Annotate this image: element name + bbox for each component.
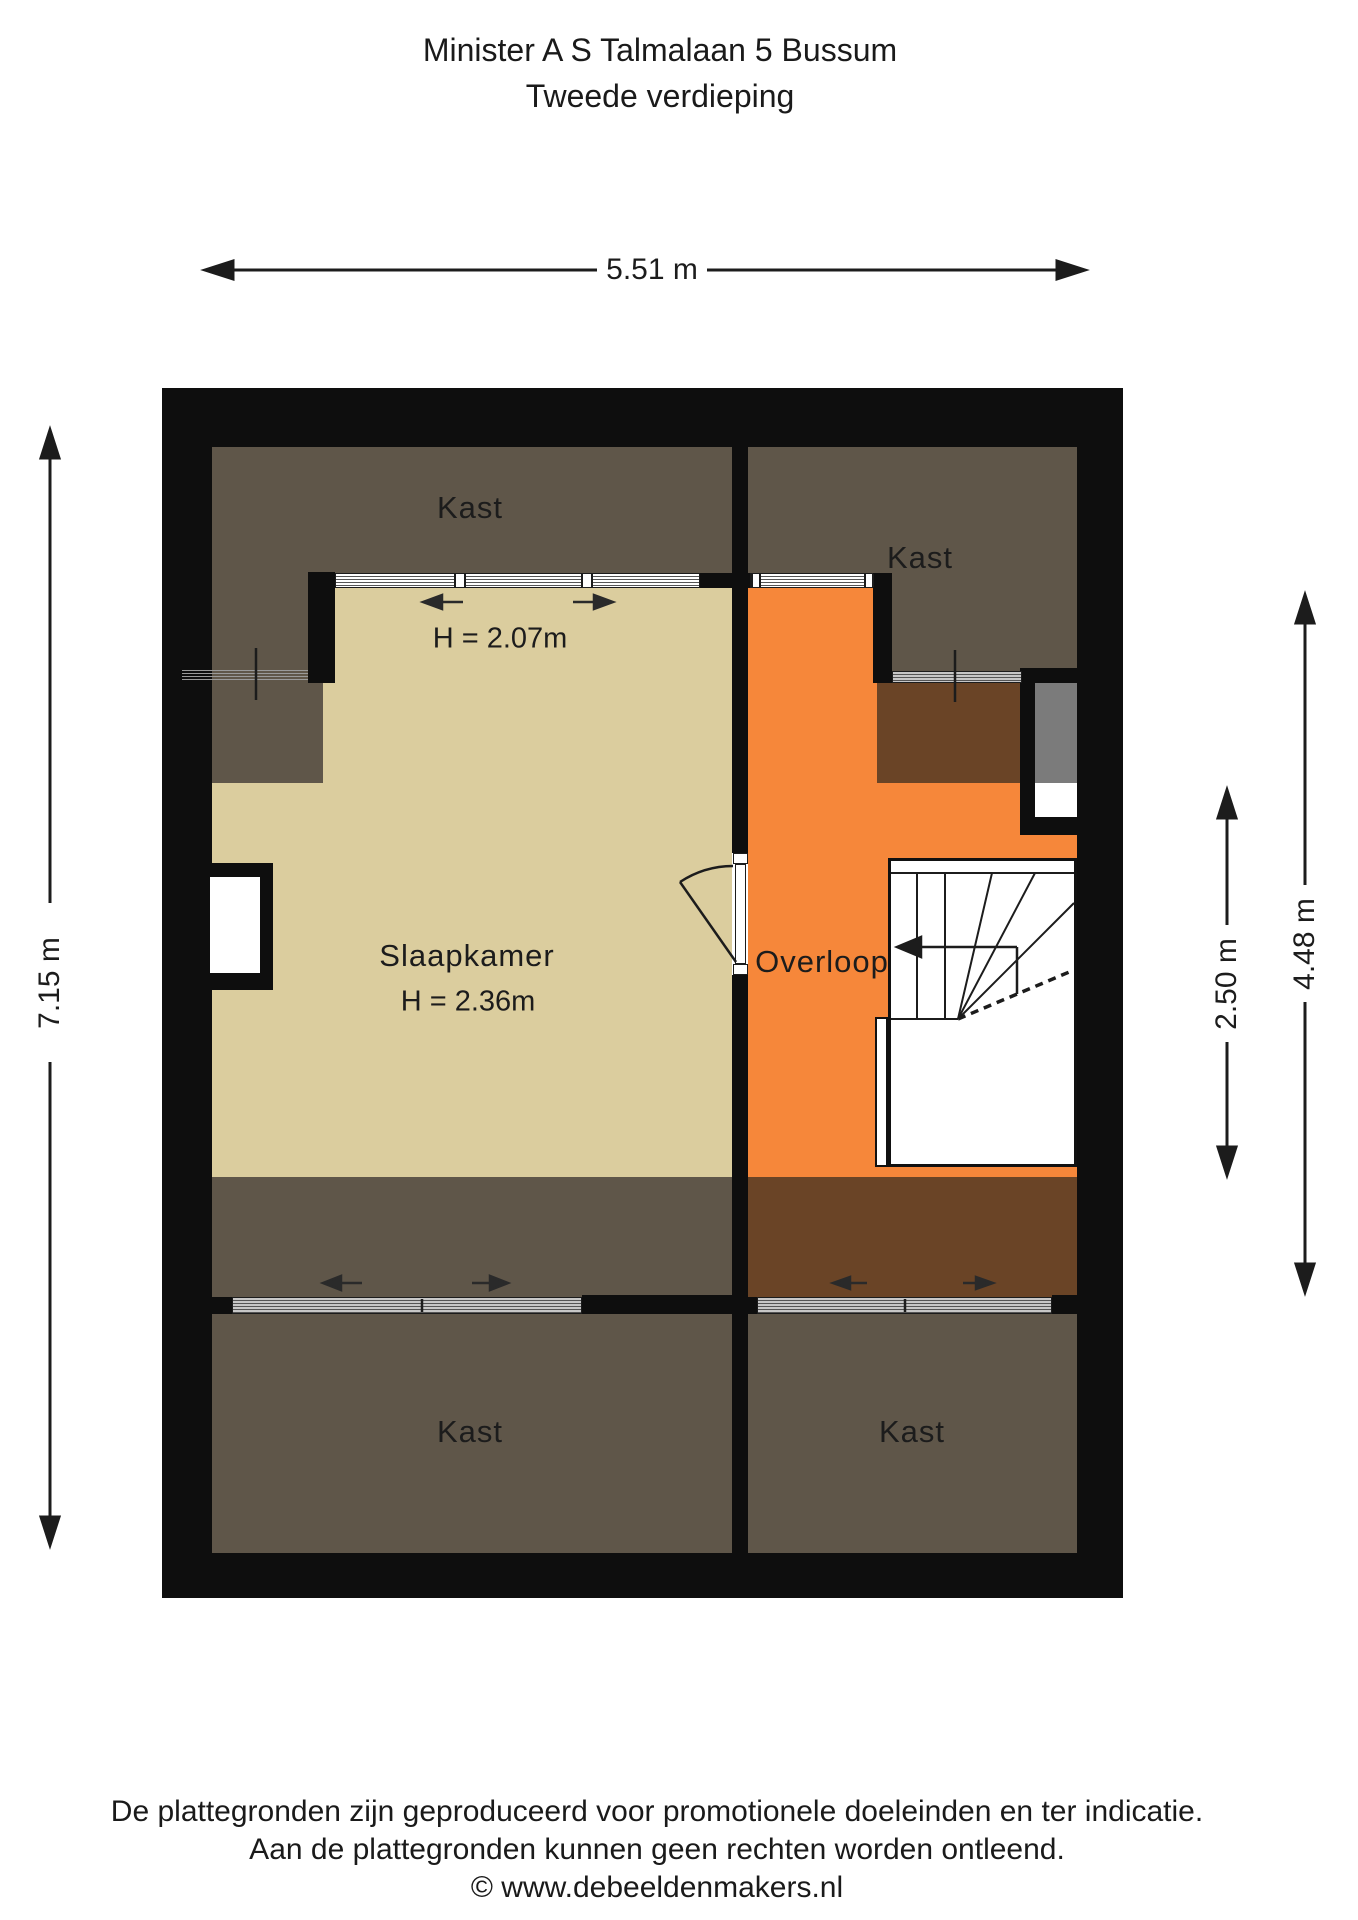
room-label-overloop: Overloop bbox=[755, 944, 889, 980]
ceiling-height-slaapkamer: H = 2.36m bbox=[401, 986, 536, 1019]
room-label-kast-top-right: Kast bbox=[887, 540, 953, 576]
footer-copyright: © www.debeeldenmakers.nl bbox=[471, 1871, 843, 1905]
dimension-label-left: 7.15 m bbox=[33, 931, 67, 1035]
rail-tick bbox=[256, 648, 955, 1312]
dimension-label-right-inner: 2.50 m bbox=[1210, 932, 1244, 1036]
room-label-kast-top-left: Kast bbox=[437, 490, 503, 526]
linework-overlay bbox=[0, 0, 1358, 1920]
room-label-kast-bottom-left: Kast bbox=[437, 1414, 503, 1450]
dimension-label-right-outer: 4.48 m bbox=[1288, 892, 1322, 996]
room-label-slaapkamer: Slaapkamer bbox=[379, 938, 554, 974]
stair-walkline-arrow bbox=[897, 937, 1017, 994]
footer-disclaimer-1: De plattegronden zijn geproduceerd voor … bbox=[111, 1795, 1203, 1829]
floorplan-page: Minister A S Talmalaan 5 Bussum Tweede v… bbox=[0, 0, 1358, 1920]
dimension-label-top: 5.51 m bbox=[600, 253, 704, 287]
room-label-kast-bottom-right: Kast bbox=[879, 1414, 945, 1450]
footer-disclaimer-2: Aan de plattegronden kunnen geen rechten… bbox=[249, 1833, 1065, 1867]
door-swing-arc bbox=[680, 866, 736, 962]
ceiling-height-upper: H = 2.07m bbox=[433, 623, 568, 656]
